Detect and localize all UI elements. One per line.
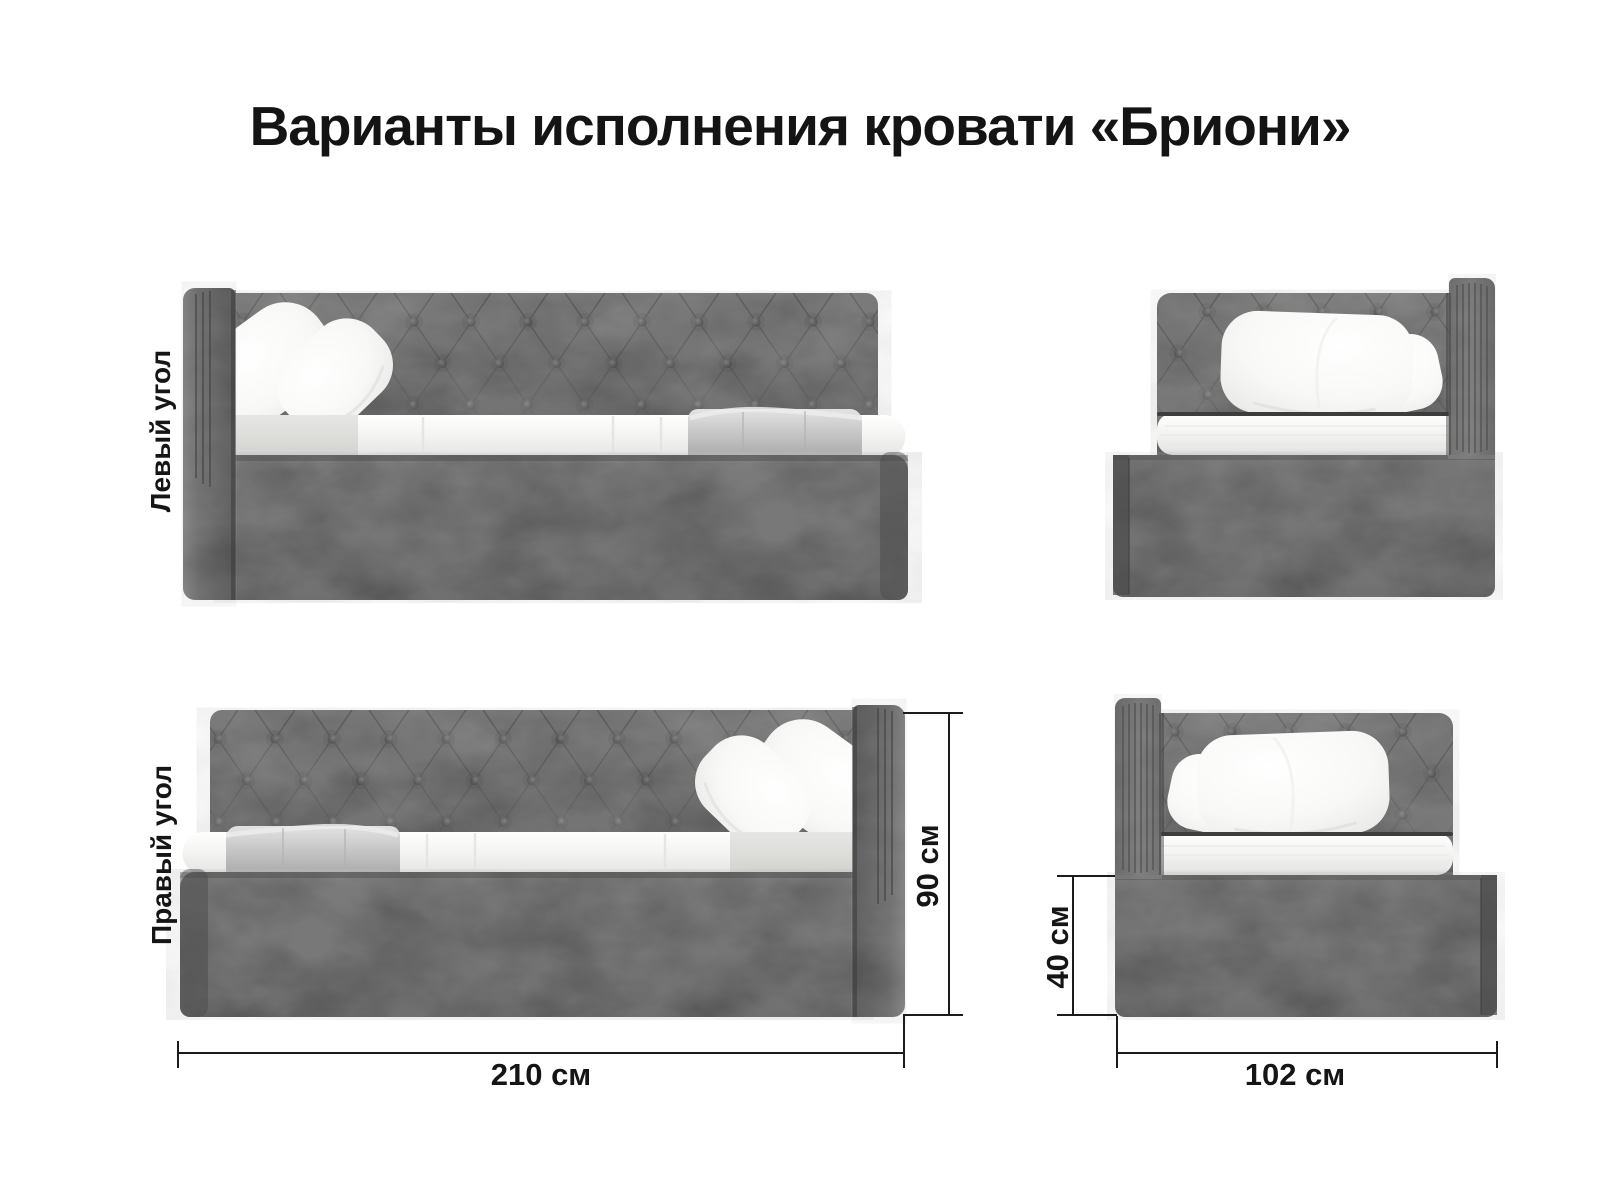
dim-length-label: 210 см <box>421 1058 661 1092</box>
dim-width-extension-left <box>1116 1016 1118 1068</box>
diagram-page: Варианты исполнения кровати «Бриони» <box>0 0 1600 1200</box>
dim-length-extension-right <box>903 1016 905 1068</box>
dim-width-label: 102 см <box>1175 1058 1415 1092</box>
bed-illustrations <box>0 0 1600 1200</box>
dim-length-line <box>178 1052 905 1054</box>
bed-side-view-left-corner <box>183 286 908 600</box>
dim-height-tick-bottom <box>903 1014 963 1016</box>
dim-length-tick-left <box>177 1041 179 1068</box>
dim-width-line <box>1117 1052 1498 1054</box>
bed-front-view-right-corner <box>1115 698 1497 1017</box>
bed-side-view-right-corner <box>180 703 905 1017</box>
dim-height-line <box>948 713 950 1016</box>
dim-base-height-label: 40 см <box>1041 877 1075 1017</box>
label-right-corner: Правый угол <box>145 745 179 965</box>
dim-height-label: 90 см <box>911 796 945 936</box>
label-left-corner: Левый угол <box>144 331 178 531</box>
bed-front-view-left-corner <box>1113 278 1495 597</box>
dim-width-tick-right <box>1496 1041 1498 1068</box>
dim-height-tick-top <box>903 712 963 714</box>
